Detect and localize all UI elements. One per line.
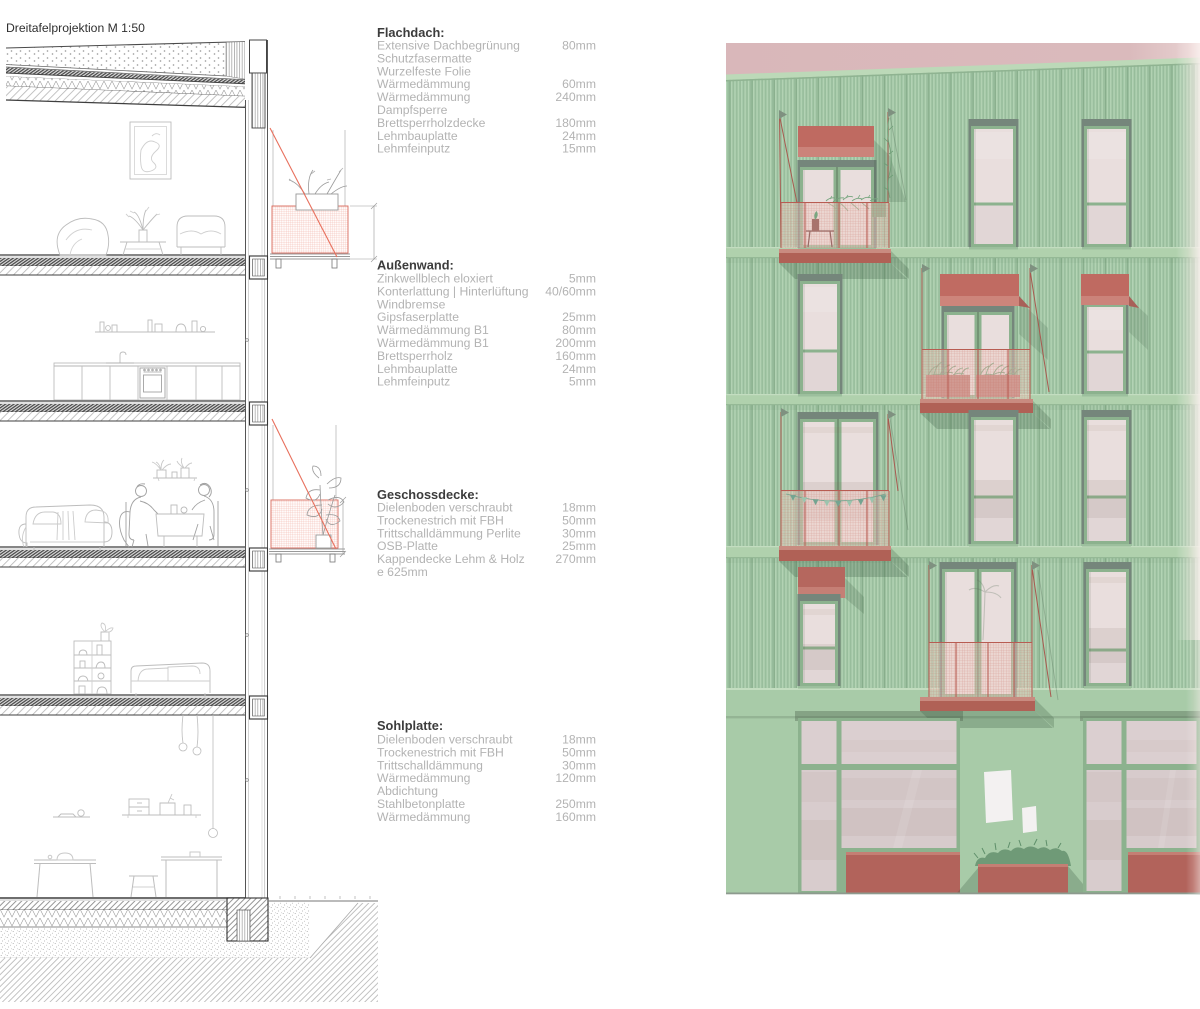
svg-text:80mm: 80mm: [562, 323, 596, 337]
svg-text:Wärmedämmung: Wärmedämmung: [377, 90, 470, 104]
svg-text:25mm: 25mm: [562, 539, 596, 553]
svg-text:OSB-Platte: OSB-Platte: [377, 539, 438, 553]
svg-text:120mm: 120mm: [555, 771, 596, 785]
svg-text:Lehmbauplatte: Lehmbauplatte: [377, 129, 458, 143]
svg-text:24mm: 24mm: [562, 129, 596, 143]
svg-text:200mm: 200mm: [555, 336, 596, 350]
svg-text:Trockenestrich mit FBH: Trockenestrich mit FBH: [377, 745, 504, 759]
svg-text:Wärmedämmung: Wärmedämmung: [377, 771, 470, 785]
svg-text:25mm: 25mm: [562, 310, 596, 324]
svg-text:180mm: 180mm: [555, 116, 596, 130]
svg-text:Dreitafelprojektion M 1:50: Dreitafelprojektion M 1:50: [6, 21, 145, 35]
svg-text:Dielenboden verschraubt: Dielenboden verschraubt: [377, 733, 513, 747]
svg-text:Stahlbetonplatte: Stahlbetonplatte: [377, 797, 465, 811]
svg-text:Außenwand:: Außenwand:: [377, 258, 454, 273]
svg-text:30mm: 30mm: [562, 758, 596, 772]
svg-text:Gipsfaserplatte: Gipsfaserplatte: [377, 310, 459, 324]
svg-text:Wärmedämmung B1: Wärmedämmung B1: [377, 336, 489, 350]
svg-text:Extensive Dachbegrünung: Extensive Dachbegrünung: [377, 39, 520, 53]
svg-text:Zinkwellblech eloxiert: Zinkwellblech eloxiert: [377, 272, 493, 286]
svg-text:60mm: 60mm: [562, 77, 596, 91]
svg-text:24mm: 24mm: [562, 362, 596, 376]
svg-text:270mm: 270mm: [555, 552, 596, 566]
svg-text:Konterlattung | Hinterlüftung: Konterlattung | Hinterlüftung: [377, 284, 529, 298]
svg-text:Wärmedämmung B1: Wärmedämmung B1: [377, 323, 489, 337]
svg-text:e 625mm: e 625mm: [377, 565, 428, 579]
svg-text:Lehmfeinputz: Lehmfeinputz: [377, 142, 450, 156]
svg-text:18mm: 18mm: [562, 501, 596, 515]
svg-text:Wärmedämmung: Wärmedämmung: [377, 77, 470, 91]
svg-text:Wurzelfeste Folie: Wurzelfeste Folie: [377, 64, 471, 78]
svg-text:Dielenboden verschraubt: Dielenboden verschraubt: [377, 501, 513, 515]
svg-text:80mm: 80mm: [562, 39, 596, 53]
svg-text:5mm: 5mm: [569, 272, 596, 286]
svg-text:Dampfsperre: Dampfsperre: [377, 103, 448, 117]
svg-text:Schutzfasermatte: Schutzfasermatte: [377, 51, 472, 65]
svg-text:250mm: 250mm: [555, 797, 596, 811]
svg-text:240mm: 240mm: [555, 90, 596, 104]
svg-text:160mm: 160mm: [555, 810, 596, 824]
svg-text:50mm: 50mm: [562, 513, 596, 527]
svg-text:Trittschalldämmung: Trittschalldämmung: [377, 758, 483, 772]
svg-text:Lehmbauplatte: Lehmbauplatte: [377, 362, 458, 376]
svg-text:50mm: 50mm: [562, 745, 596, 759]
svg-text:40/60mm: 40/60mm: [545, 284, 596, 298]
svg-text:15mm: 15mm: [562, 142, 596, 156]
svg-text:Brettsperrholz: Brettsperrholz: [377, 349, 453, 363]
svg-text:18mm: 18mm: [562, 733, 596, 747]
svg-text:160mm: 160mm: [555, 349, 596, 363]
svg-text:Brettsperrholzdecke: Brettsperrholzdecke: [377, 116, 486, 130]
svg-text:Sohlplatte:: Sohlplatte:: [377, 718, 443, 733]
svg-text:Trittschalldämmung Perlite: Trittschalldämmung Perlite: [377, 526, 521, 540]
svg-text:5mm: 5mm: [569, 375, 596, 389]
svg-text:Abdichtung: Abdichtung: [377, 784, 438, 798]
svg-text:Trockenestrich mit FBH: Trockenestrich mit FBH: [377, 513, 504, 527]
svg-text:Wärmedämmung: Wärmedämmung: [377, 810, 470, 824]
svg-text:Kappendecke Lehm & Holz: Kappendecke Lehm & Holz: [377, 552, 525, 566]
svg-text:Lehmfeinputz: Lehmfeinputz: [377, 375, 450, 389]
svg-text:30mm: 30mm: [562, 526, 596, 540]
svg-text:Windbremse: Windbremse: [377, 297, 446, 311]
